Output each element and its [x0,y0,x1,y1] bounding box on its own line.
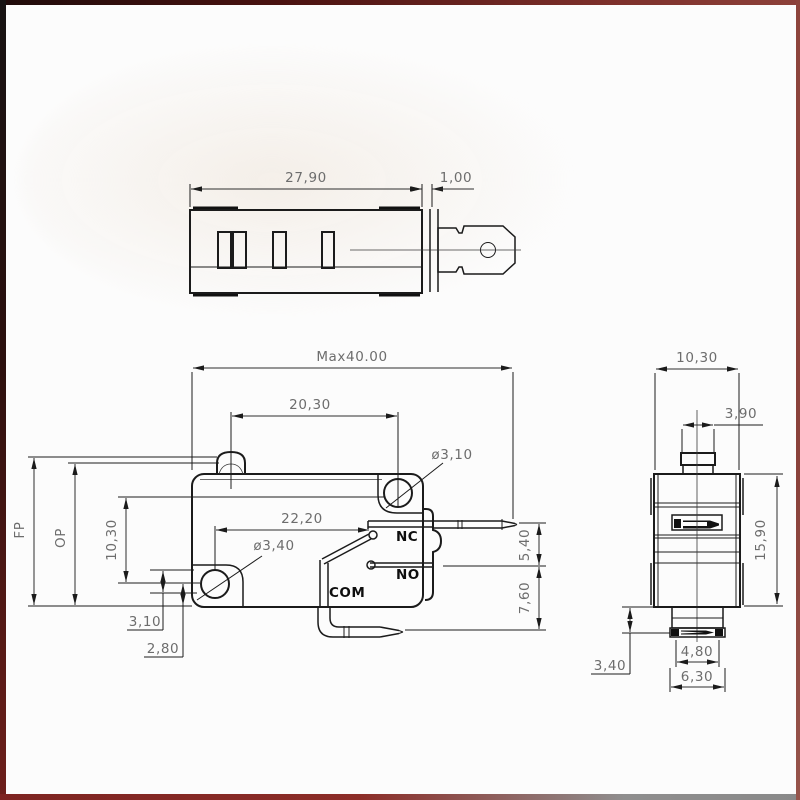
dim-3-40: 3,40 [591,607,670,674]
technical-drawing-canvas: 27,90 1,00 [0,0,800,800]
label-com: COM [329,585,365,601]
photo-border-top [0,0,800,5]
dim-label-hole-top: ø3,10 [431,447,472,463]
callout-hole-bottom: ø3,40 [197,538,295,600]
dim-label-22-20: 22,20 [281,511,323,527]
dim-27-90: 27,90 [190,170,422,207]
nc-terminal-external [433,519,517,530]
dim-label-15-90: 15,90 [753,519,769,561]
dim-label-3-40: 3,40 [594,658,626,674]
dim-10-30: 10,30 [104,497,384,583]
dim-label-7-60: 7,60 [517,582,533,614]
dim-label-max-40: Max40.00 [316,349,387,365]
dim-label-10-30: 10,30 [104,519,120,561]
dim-20-30: 20,30 [231,397,398,506]
dim-label-op: OP [53,528,69,548]
dim-label-27-90: 27,90 [285,170,327,186]
dim-15-90: 15,90 [744,474,783,606]
dim-max-40: Max40.00 [192,349,513,519]
dim-label-fp: FP [12,521,28,538]
mounting-hole-bottom [201,570,229,598]
dim-3-90: 3,90 [682,406,763,452]
callout-hole-top: ø3,10 [386,447,473,508]
dim-3-10: 3,10 [127,570,197,630]
dim-label-4-80: 4,80 [681,644,713,660]
photo-border-right [796,0,800,800]
front-view: NC NO COM [12,349,546,657]
label-nc: NC [396,529,418,545]
top-view-body [190,210,422,293]
side-view-plunger [681,453,715,474]
dim-label-3-10: 3,10 [129,614,161,630]
dim-label-2-80: 2,80 [147,641,179,657]
dim-op: OP [53,463,219,605]
dim-label-side-10-30: 10,30 [676,350,718,366]
dim-5-40-7-60: 5,40 7,60 [405,523,546,630]
dim-6-30: 6,30 [670,668,725,692]
photo-border-bottom [0,794,800,800]
side-view-base [670,607,725,637]
label-no: NO [396,567,420,583]
dim-label-6-30: 6,30 [681,669,713,685]
front-view-body [192,474,423,607]
dim-label-3-90: 3,90 [725,406,757,422]
dim-4-80: 4,80 [676,640,719,667]
dim-label-hole-bottom: ø3,40 [253,538,294,554]
com-terminal-external [318,607,403,638]
dim-label-1-00: 1,00 [440,170,472,186]
dim-label-5-40: 5,40 [517,529,533,561]
photo-border-left [0,0,6,800]
top-view: 27,90 1,00 [190,170,521,297]
top-view-slots [218,232,334,268]
side-view: 10,30 3,90 15,90 3,40 [591,350,783,692]
dim-label-20-30: 20,30 [289,397,331,413]
